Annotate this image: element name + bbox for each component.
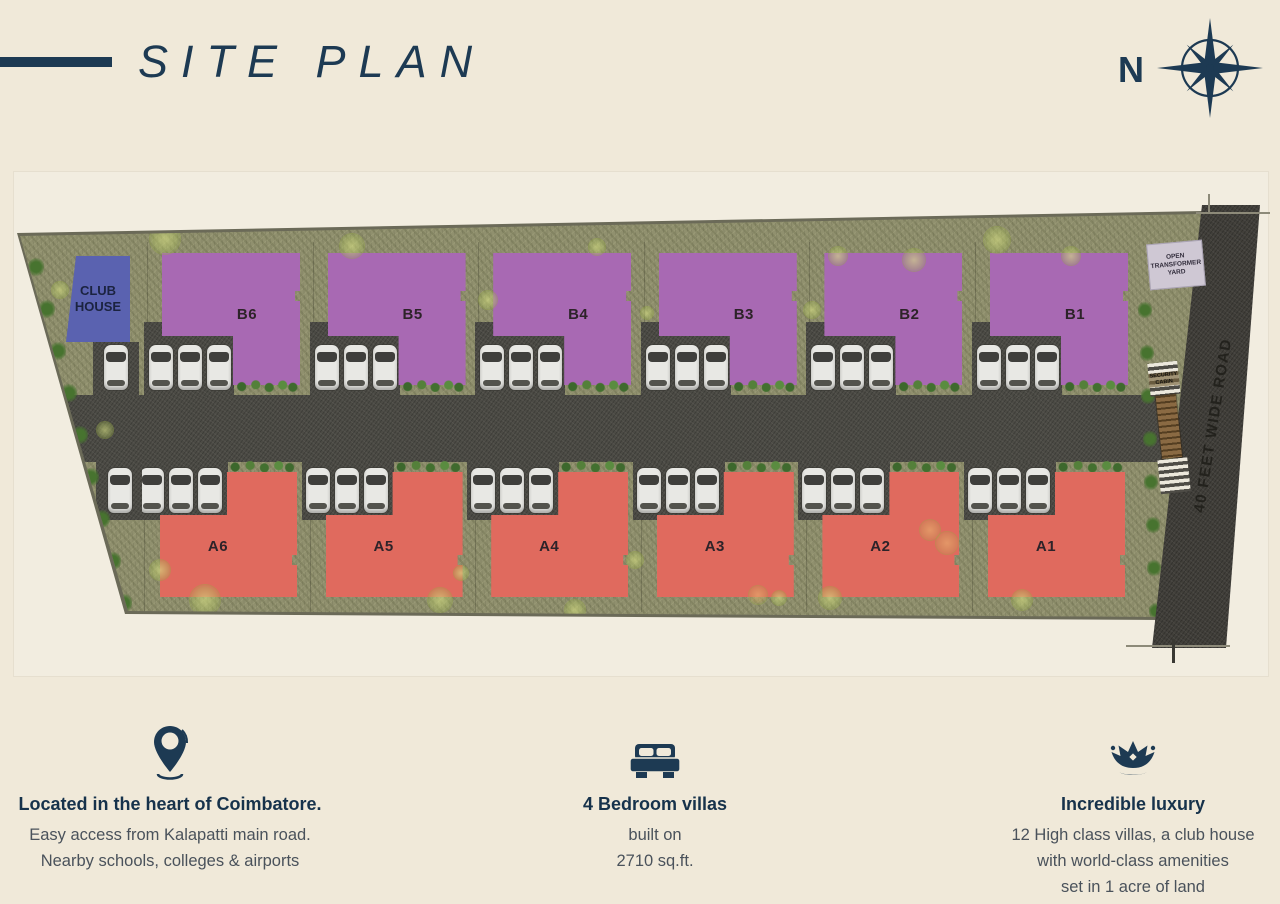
parked-car [344, 345, 368, 390]
tree-icon [51, 281, 69, 299]
tree-icon [453, 565, 469, 581]
parked-car [1006, 345, 1030, 390]
feature-heading: Incredible luxury [973, 794, 1280, 815]
parked-car [666, 468, 690, 513]
parked-car [480, 345, 504, 390]
parked-car [500, 468, 524, 513]
tree-icon [427, 587, 453, 613]
parked-car [997, 468, 1021, 513]
villa-label-b4: B4 [523, 306, 633, 323]
parked-car [207, 345, 231, 390]
survey-tick [1172, 639, 1175, 663]
shrub-strip [558, 461, 626, 472]
club-house: CLUB HOUSE [66, 256, 130, 342]
compass-rose-icon [1156, 14, 1264, 122]
tree-icon [339, 233, 365, 259]
plot-area: CLUB HOUSE B6B5B4B3B2B1A6A5A4A3A2A1 [14, 172, 1268, 676]
villa-label-a4: A4 [491, 538, 607, 555]
parked-car [1026, 468, 1050, 513]
tree-icon [818, 586, 842, 610]
shrub-strip [724, 461, 792, 472]
tree-icon [983, 226, 1011, 254]
tree-icon [189, 584, 221, 616]
tree-icon [1011, 589, 1033, 611]
feature-luxury: Incredible luxury 12 High class villas, … [973, 722, 1280, 900]
parked-car [315, 345, 339, 390]
parked-car [704, 345, 728, 390]
feature-line: Nearby schools, colleges & airports [10, 848, 330, 874]
club-house-label: CLUB HOUSE [71, 283, 125, 316]
parked-car [977, 345, 1001, 390]
title-accent-bar [0, 57, 112, 67]
survey-tick [1126, 645, 1230, 647]
parked-car [104, 345, 128, 390]
villa-label-b3: B3 [689, 306, 799, 323]
parked-car [675, 345, 699, 390]
villa-label-b5: B5 [358, 306, 468, 323]
tree-icon [935, 531, 959, 555]
parked-car [538, 345, 562, 390]
tree-icon [748, 585, 768, 605]
parked-car [869, 345, 893, 390]
parked-car [529, 468, 553, 513]
tree-icon [478, 290, 498, 310]
tree-icon [803, 301, 821, 319]
compass-north-label: N [1118, 49, 1144, 91]
villa-label-a5: A5 [326, 538, 442, 555]
survey-tick [1208, 194, 1210, 214]
crosswalk-stripes [1157, 457, 1190, 494]
villa-label-a1: A1 [988, 538, 1104, 555]
shrub-strip [1055, 461, 1123, 472]
parked-car [169, 468, 193, 513]
tree-icon [149, 223, 181, 255]
parked-car [840, 345, 864, 390]
shrub-icon [1147, 558, 1161, 578]
shrub-strip [393, 461, 461, 472]
tree-icon [828, 246, 848, 266]
parked-car [364, 468, 388, 513]
parked-car [178, 345, 202, 390]
shrub-strip [400, 380, 464, 392]
shrub-strip [227, 461, 295, 472]
feature-line: 2710 sq.ft. [495, 848, 815, 874]
location-pin-icon [10, 722, 330, 780]
shrub-strip [731, 380, 795, 392]
feature-heading: Located in the heart of Coimbatore. [10, 794, 330, 815]
feature-location: Located in the heart of Coimbatore. Easy… [10, 722, 330, 874]
parked-car [637, 468, 661, 513]
feature-bedrooms: 4 Bedroom villas built on 2710 sq.ft. [495, 722, 815, 874]
parked-car [695, 468, 719, 513]
feature-line: with world-class amenities [973, 848, 1280, 874]
page-title: SITE PLAN [138, 36, 485, 88]
open-transformer-yard: OPEN TRANSFORMER YARD [1146, 240, 1206, 291]
parked-car [811, 345, 835, 390]
tree-icon [771, 590, 787, 606]
parked-car [860, 468, 884, 513]
parked-car [198, 468, 222, 513]
parked-car [802, 468, 826, 513]
tree-icon [564, 599, 586, 621]
feature-heading: 4 Bedroom villas [495, 794, 815, 815]
parked-car [335, 468, 359, 513]
tree-icon [640, 306, 654, 320]
feature-line: Easy access from Kalapatti main road. [10, 822, 330, 848]
villa-label-b6: B6 [192, 306, 302, 323]
villa-label-a2: A2 [822, 538, 938, 555]
villa-label-a6: A6 [160, 538, 276, 555]
shrub-icon [1146, 515, 1160, 535]
feature-line: 12 High class villas, a club house [973, 822, 1280, 848]
villa-label-b1: B1 [1020, 306, 1130, 323]
feature-line: set in 1 acre of land [973, 874, 1280, 900]
shrub-icon [1138, 300, 1152, 320]
gate-icon [1156, 394, 1182, 459]
parked-car [140, 468, 164, 513]
parked-car [968, 468, 992, 513]
feature-line: built on [495, 822, 815, 848]
shrub-icon [1140, 343, 1154, 363]
shrub-icon [1144, 472, 1158, 492]
shrub-strip [896, 380, 960, 392]
parked-car [1035, 345, 1059, 390]
shrub-strip [234, 380, 298, 392]
parked-car [471, 468, 495, 513]
transformer-yard-label: OPEN TRANSFORMER YARD [1149, 251, 1203, 280]
parked-car [831, 468, 855, 513]
tree-icon [149, 559, 171, 581]
parked-car [149, 345, 173, 390]
crown-icon [973, 722, 1280, 780]
tree-icon [626, 551, 644, 569]
parked-car [509, 345, 533, 390]
parked-car [646, 345, 670, 390]
tree-icon [1061, 246, 1081, 266]
parked-car [306, 468, 330, 513]
bed-icon [495, 722, 815, 780]
tree-icon [588, 238, 606, 256]
tree-icon [96, 421, 114, 439]
site-plan-page: { "page": { "background": "#f0e9d9", "ac… [0, 0, 1280, 904]
parked-car [108, 468, 132, 513]
internal-road [32, 395, 1166, 462]
shrub-strip [565, 380, 629, 392]
parked-car [373, 345, 397, 390]
site-plan-panel: CLUB HOUSE B6B5B4B3B2B1A6A5A4A3A2A1 40 F… [14, 172, 1268, 676]
villa-label-b2: B2 [854, 306, 964, 323]
villa-label-a3: A3 [657, 538, 773, 555]
shrub-strip [1062, 380, 1126, 392]
tree-icon [902, 248, 926, 272]
shrub-strip [889, 461, 957, 472]
